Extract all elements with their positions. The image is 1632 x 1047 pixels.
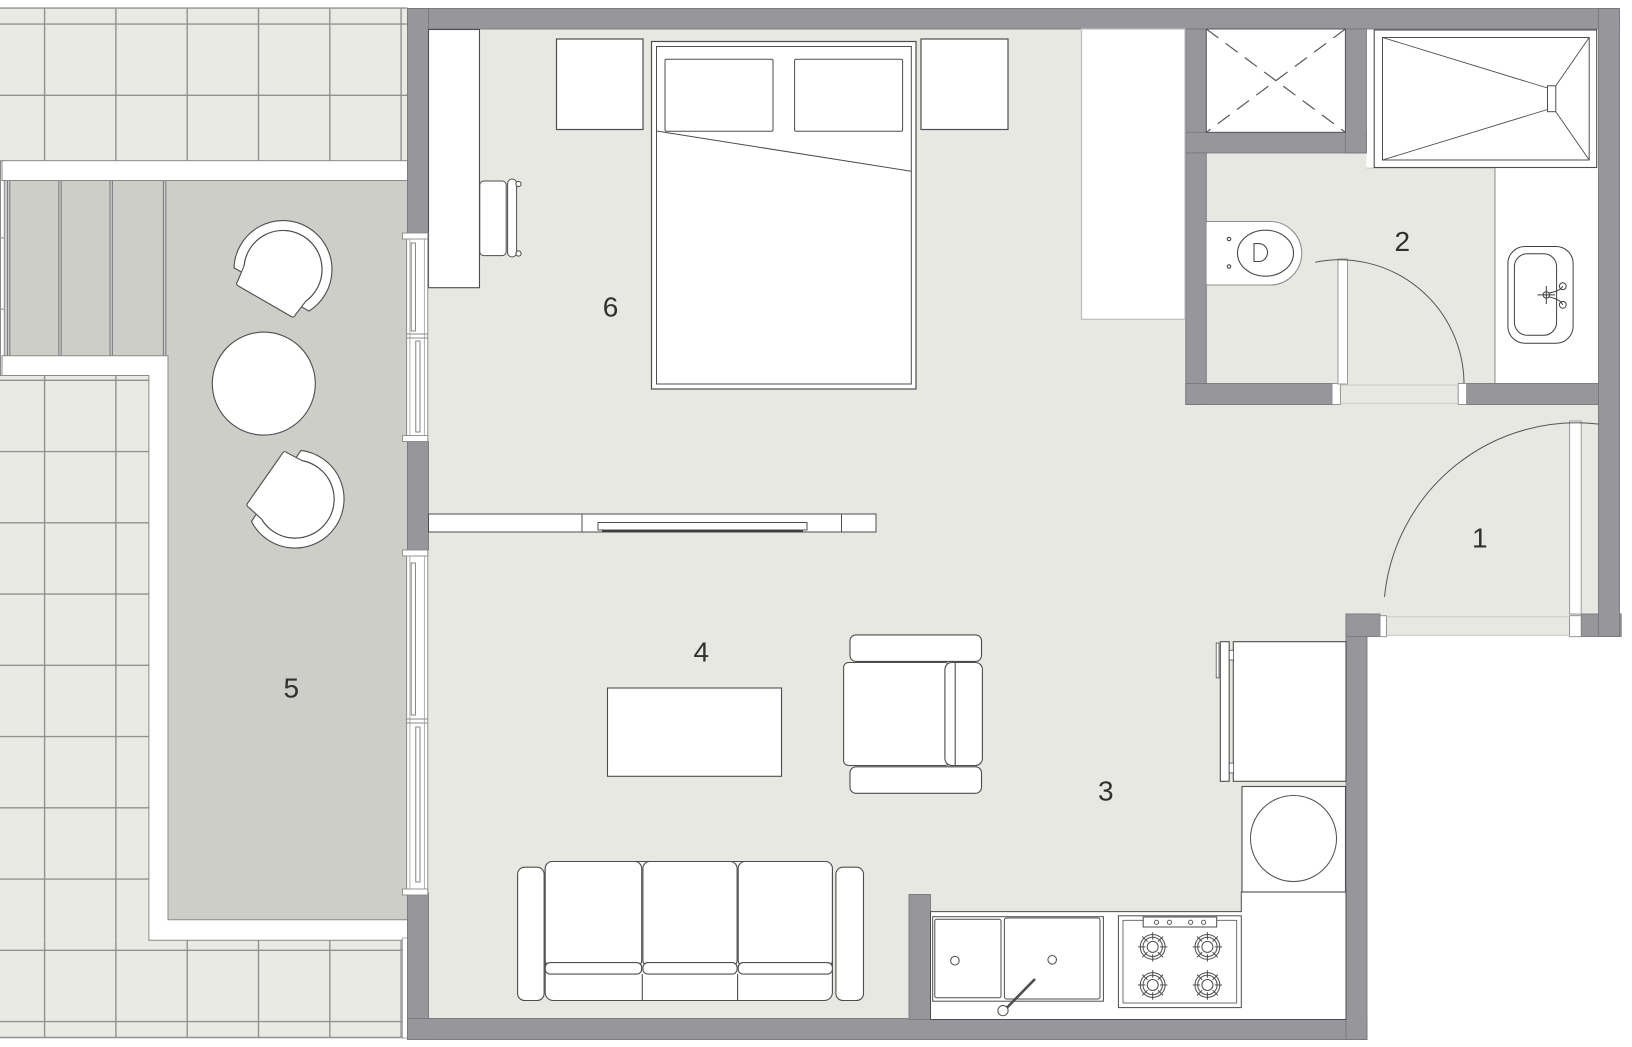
svg-text:2: 2 [1395, 226, 1411, 257]
svg-text:3: 3 [1098, 776, 1114, 807]
svg-text:5: 5 [284, 673, 300, 704]
svg-text:6: 6 [603, 292, 619, 323]
svg-text:1: 1 [1472, 523, 1488, 554]
svg-text:4: 4 [694, 637, 710, 668]
